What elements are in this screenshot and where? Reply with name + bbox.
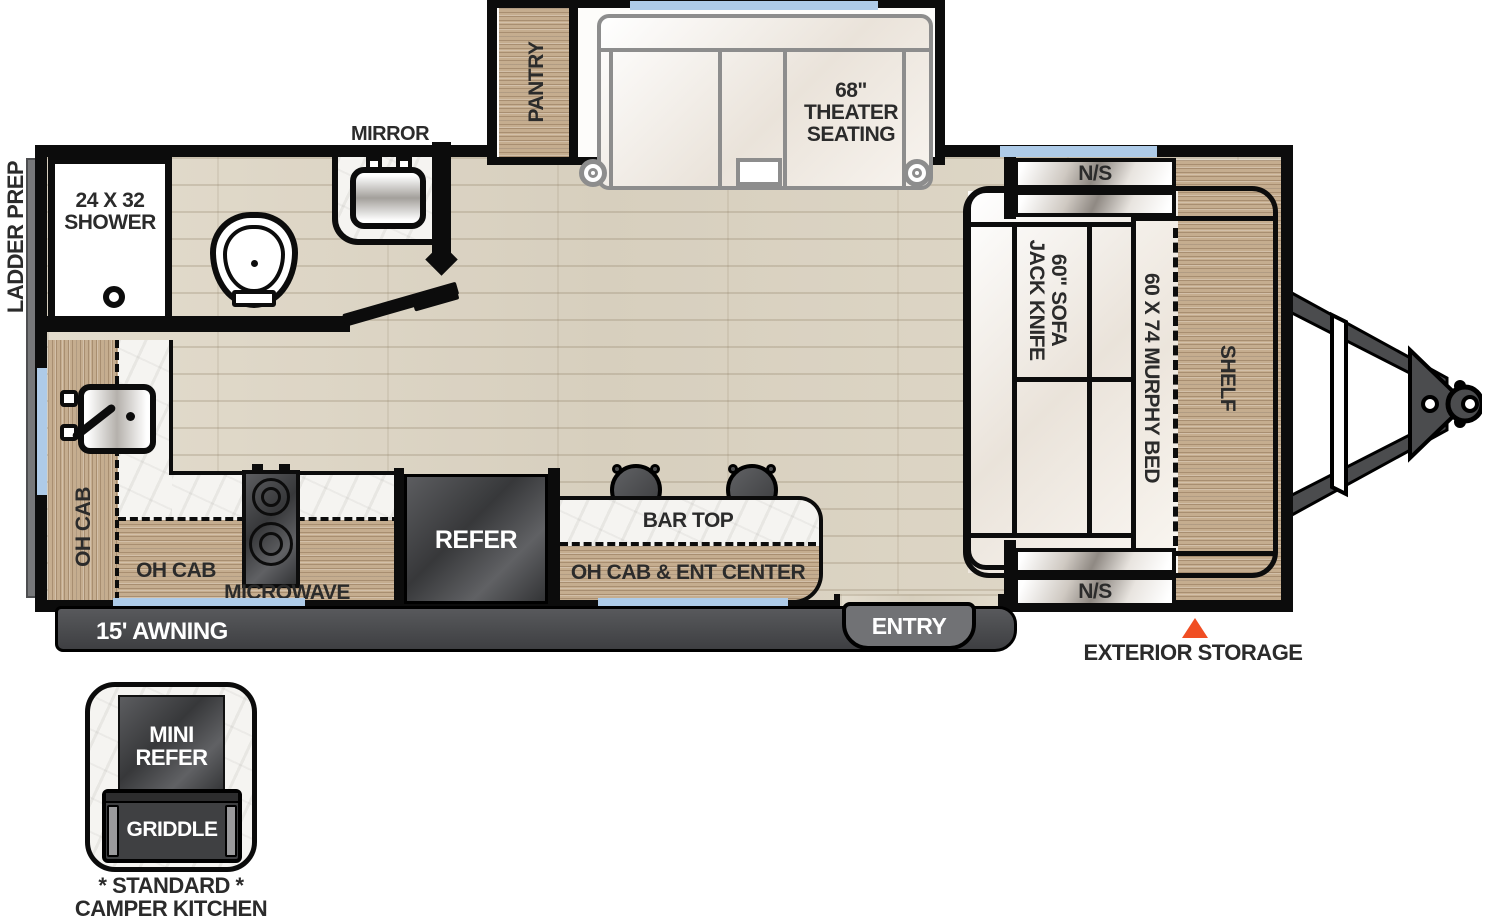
window [1000,146,1157,157]
murphy-bed-label: 60 X 74 MURPHY BED [1138,248,1162,508]
oh-cab-dash-line [115,340,119,600]
theater-seat-divider-left [718,48,722,186]
griddle-label: GRIDDLE [120,819,224,841]
theater-armrest-left [609,48,613,186]
ns-front-label: N/S [1018,581,1172,603]
oh-cab-bottom-label: OH CAB [130,560,222,584]
ns-rear-label: N/S [1018,163,1172,185]
bathroom-wall-stub [432,142,451,254]
refer-wall [394,468,404,608]
theater-seating: 68" THEATER SEATING [597,14,933,190]
griddle: GRIDDLE [102,789,242,863]
murphy-bed-dash-line [1173,228,1178,546]
kitchen-faucet-icon [60,390,78,407]
shower-label: 24 X 32 SHOWER [55,190,165,234]
drain-icon [103,286,125,308]
camper-kitchen-caption: * STANDARD * CAMPER KITCHEN [58,874,284,918]
counter-edge [169,340,173,475]
nightstand-front: N/S [1014,576,1176,607]
shelf-label: SHELF [1214,328,1238,428]
shower: 24 X 32 SHOWER [48,157,172,330]
cup-holder-icon [579,159,607,187]
camper-kitchen-inset: MINI REFER GRIDDLE [85,682,257,872]
mini-refer-label: MINI REFER [120,723,223,769]
bar-top-label: BAR TOP [618,510,758,532]
floorplan-canvas: LADDER PREP PANTRY 68" THEATER SEATING 2… [0,0,1485,918]
refer: REFER [404,474,548,604]
nightstand-rear: N/S [1014,158,1176,189]
mirror-label: MIRROR [340,124,440,142]
bar-unit: BAR TOP OH CAB & ENT CENTER [560,496,823,604]
refer-wall [548,468,560,608]
bathroom-wall [35,316,350,332]
awning-label: 15' AWNING [96,619,256,644]
sofa-label: 60" SOFA JACK KNIFE [1023,225,1069,375]
cup-holder-icon [903,159,931,187]
theater-console-tray [736,158,782,186]
exterior-storage-arrow-icon [1182,618,1208,638]
stove-icon [242,470,300,588]
window [37,368,47,495]
entry-label: ENTRY [846,614,972,638]
nightstand-rear-shelf [1014,191,1176,217]
exterior-storage-label: EXTERIOR STORAGE [1083,641,1303,664]
oh-cab-ent-center-label: OH CAB & ENT CENTER [564,562,812,584]
toilet-icon [210,212,302,314]
bathroom-sink-icon [350,167,426,229]
sink-drain-icon [126,412,135,421]
refer-label: REFER [407,527,545,553]
entry-step: ENTRY [842,602,976,650]
nightstand-front-shelf [1014,548,1176,574]
theater-headrest-line [601,48,929,52]
oh-cab-left-label: OH CAB [73,472,99,582]
theater-seating-label: 68" THEATER SEATING [791,80,911,146]
ladder-prep-label: LADDER PREP [4,152,30,322]
trailer-hitch-icon [1290,288,1482,520]
pantry-label: PANTRY [526,17,548,147]
bar-dash-line [560,542,816,546]
mini-refer: MINI REFER [118,695,225,795]
window [630,1,878,10]
theater-console-divider [783,48,787,186]
pantry-wall [569,8,578,157]
